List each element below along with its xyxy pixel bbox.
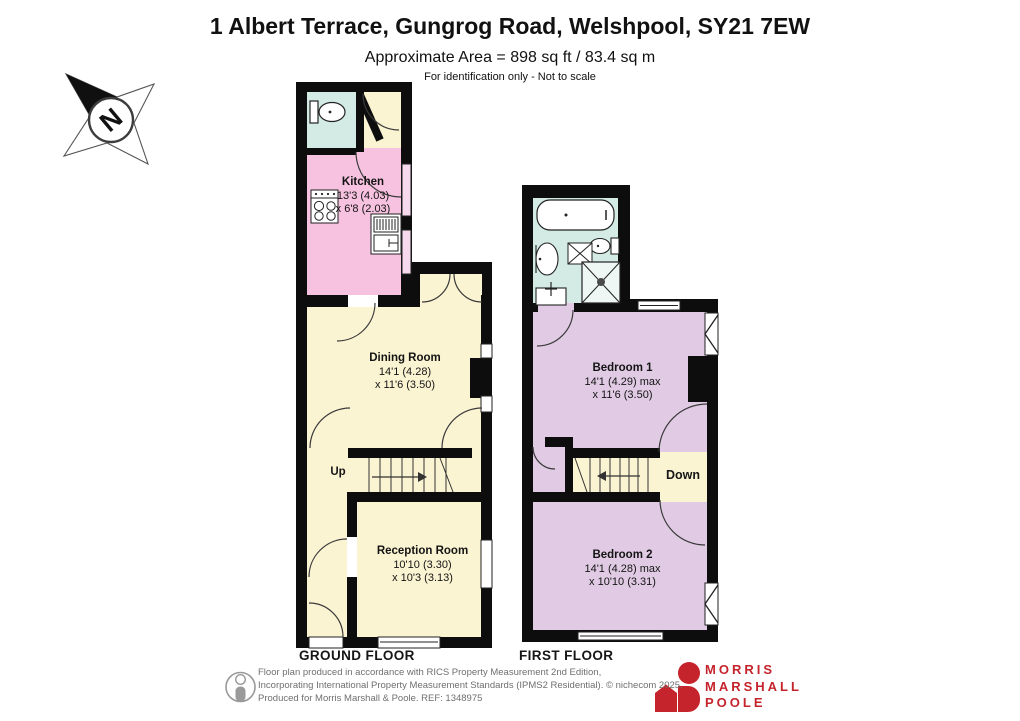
stairs-down-label: Down bbox=[658, 468, 708, 482]
dining-room-label: Dining Room 14'1 (4.28) x 11'6 (3.50) bbox=[335, 352, 475, 393]
kitchen-sink-icon bbox=[371, 214, 401, 254]
bath-icon bbox=[537, 200, 614, 230]
bathroom-toilet-icon bbox=[590, 238, 619, 254]
kitchen-dim1: 13'3 (4.03) bbox=[303, 190, 423, 204]
reception-room-name: Reception Room bbox=[350, 545, 495, 559]
bedroom1-dim1: 14'1 (4.29) max bbox=[550, 376, 695, 390]
kitchen-label: Kitchen 13'3 (4.03) x 6'8 (2.03) bbox=[303, 176, 423, 217]
dining-room-dim1: 14'1 (4.28) bbox=[335, 366, 475, 380]
reception-room-dim2: x 10'3 (3.13) bbox=[350, 572, 495, 586]
nichecom-person-icon bbox=[226, 673, 255, 702]
north-compass-icon: N bbox=[64, 74, 154, 164]
bedroom1-name: Bedroom 1 bbox=[550, 362, 695, 376]
wc-toilet-icon bbox=[310, 101, 345, 123]
floorplan-graphic: N bbox=[0, 0, 1020, 721]
disclaimer-line3: Produced for Morris Marshall & Poole. RE… bbox=[258, 692, 683, 705]
disclaimer-text: Floor plan produced in accordance with R… bbox=[258, 666, 683, 705]
dining-room-name: Dining Room bbox=[335, 352, 475, 366]
morris-marshall-poole-wordmark: MORRIS MARSHALL POOLE bbox=[705, 662, 802, 712]
bedroom2-dim2: x 10'10 (3.31) bbox=[550, 576, 695, 590]
kitchen-name: Kitchen bbox=[303, 176, 423, 190]
disclaimer-line2: Incorporating International Property Mea… bbox=[258, 679, 683, 692]
disclaimer-line1: Floor plan produced in accordance with R… bbox=[258, 666, 683, 679]
logo-word-poole: POOLE bbox=[705, 695, 802, 712]
floorplan-page: N bbox=[0, 0, 1020, 721]
bedroom1-label: Bedroom 1 14'1 (4.29) max x 11'6 (3.50) bbox=[550, 362, 695, 403]
ground-floor-caption: GROUND FLOOR bbox=[299, 648, 415, 663]
cupboard-icon bbox=[568, 243, 592, 264]
basin-icon bbox=[536, 243, 558, 275]
logo-word-marshall: MARSHALL bbox=[705, 679, 802, 696]
shower-icon bbox=[582, 262, 620, 303]
bedroom2-dim1: 14'1 (4.28) max bbox=[550, 563, 695, 577]
kitchen-dim2: x 6'8 (2.03) bbox=[303, 203, 423, 217]
identification-note: For identification only - Not to scale bbox=[0, 71, 1020, 83]
bedroom2-label: Bedroom 2 14'1 (4.28) max x 10'10 (3.31) bbox=[550, 549, 695, 590]
stairs-up-label: Up bbox=[325, 466, 351, 478]
bedroom2-name: Bedroom 2 bbox=[550, 549, 695, 563]
reception-room-label: Reception Room 10'10 (3.30) x 10'3 (3.13… bbox=[350, 545, 495, 586]
logo-word-morris: MORRIS bbox=[705, 662, 802, 679]
reception-room-dim1: 10'10 (3.30) bbox=[350, 559, 495, 573]
bedroom1-dim2: x 11'6 (3.50) bbox=[550, 389, 695, 403]
page-title: 1 Albert Terrace, Gungrog Road, Welshpoo… bbox=[0, 13, 1020, 40]
approximate-area: Approximate Area = 898 sq ft / 83.4 sq m bbox=[0, 49, 1020, 67]
dining-room-dim2: x 11'6 (3.50) bbox=[335, 379, 475, 393]
first-floor-caption: FIRST FLOOR bbox=[519, 648, 613, 663]
